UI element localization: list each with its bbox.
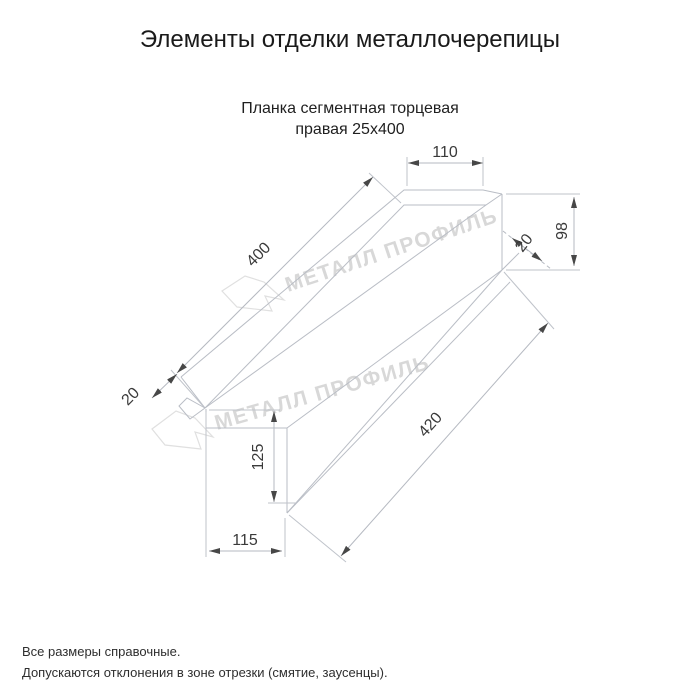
dimension-line: [152, 374, 177, 398]
left-cut-edge: [181, 377, 205, 408]
footer-note-line2: Допускаются отклонения в зоне отрезки (с…: [22, 665, 388, 680]
dimension-end-height: 98: [506, 194, 580, 270]
dimension-label-20-right: 20: [512, 231, 536, 256]
watermark-text: МЕТАЛЛ ПРОФИЛЬ: [212, 351, 432, 435]
part-subtitle-line2: правая 25х400: [295, 121, 404, 138]
dimension-label-420: 420: [415, 409, 446, 440]
dimension-label-400: 400: [243, 239, 274, 270]
extension-line: [504, 272, 554, 329]
dimension-label-98: 98: [554, 222, 571, 240]
drawing-page: МЕТАЛЛ ПРОФИЛЬ МЕТАЛЛ ПРОФИЛЬ 110 400: [0, 0, 700, 700]
left-cut-notch: [179, 398, 205, 419]
dimension-label-110: 110: [432, 144, 458, 161]
extension-line: [289, 515, 346, 562]
bottom-fold-edge: [287, 270, 502, 428]
page-title: Элементы отделки металлочерепицы: [140, 26, 560, 53]
part-outline: [179, 190, 519, 513]
dimension-line: [341, 323, 548, 556]
footer-note-line1: Все размеры справочные.: [22, 644, 180, 659]
dimension-top-width: 110: [407, 144, 483, 186]
metall-profil-logo-icon: [222, 276, 284, 311]
right-end-lip-edge: [502, 253, 519, 270]
dimension-label-20-left: 20: [119, 384, 144, 409]
part-subtitle-line1: Планка сегментная торцевая: [241, 100, 459, 117]
drawing-canvas: МЕТАЛЛ ПРОФИЛЬ МЕТАЛЛ ПРОФИЛЬ 110 400: [0, 0, 700, 700]
dimension-label-125: 125: [250, 444, 267, 471]
dimension-bottom-length: 420: [289, 272, 554, 562]
dimension-left-lip: 20: [119, 374, 177, 409]
dimension-label-115: 115: [232, 532, 258, 549]
dimension-end-lip: 20: [503, 231, 551, 269]
metall-profil-logo-icon: [152, 411, 213, 449]
extension-line: [369, 173, 401, 203]
